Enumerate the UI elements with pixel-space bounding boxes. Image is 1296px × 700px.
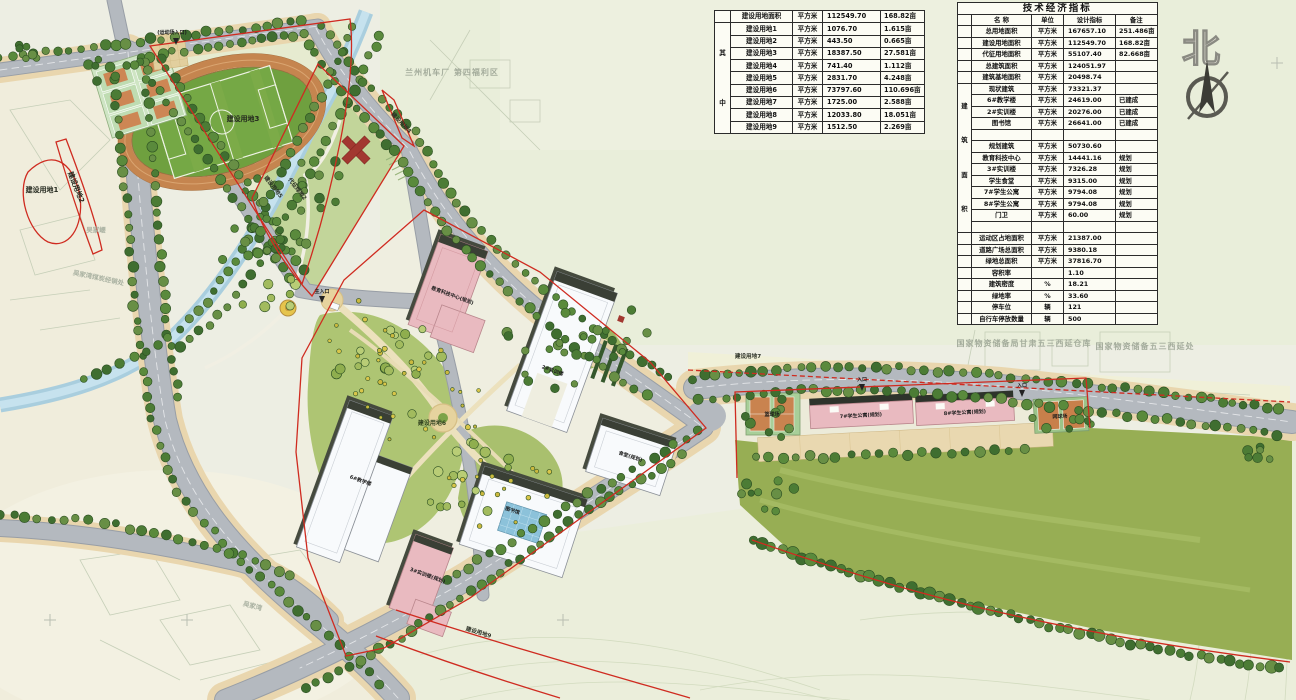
entrance-label-1: 入口 [857, 377, 867, 383]
stadium-entrance-label: (运动场入口) [157, 29, 187, 36]
building-dorm7 [809, 393, 913, 428]
depot1-label: 国家物资储备局甘肃五三西延仓库 [957, 338, 1092, 348]
depot2-label: 国家物资储备五三西延处 [1096, 341, 1195, 351]
entrance-label-2: 入口 [1017, 383, 1027, 389]
main-entrance-label: 主入口 [314, 288, 329, 295]
wujiaya-label: 吴家崾 [86, 225, 106, 234]
indicators-table: 技术经济指标名 称单位设计指标备注总用地面积平方米167657.10251.48… [957, 2, 1158, 325]
site6-label: 建设用地6 [418, 419, 446, 427]
site1-label: 建设用地1 [26, 185, 59, 194]
site7-label: 建设用地7 [734, 352, 761, 360]
land-use-table: 建设用地面积平方米112549.70168.82亩其中建设用地1平方米1076.… [714, 10, 925, 134]
factory-label: 兰州机车厂 第四福利区 [405, 67, 499, 77]
bball-label: 篮球场 [763, 411, 779, 418]
north-label: 北 [1182, 27, 1220, 71]
tennis-label: 网球场 [1052, 413, 1067, 421]
site3-label: 建设用地3 [227, 114, 260, 123]
